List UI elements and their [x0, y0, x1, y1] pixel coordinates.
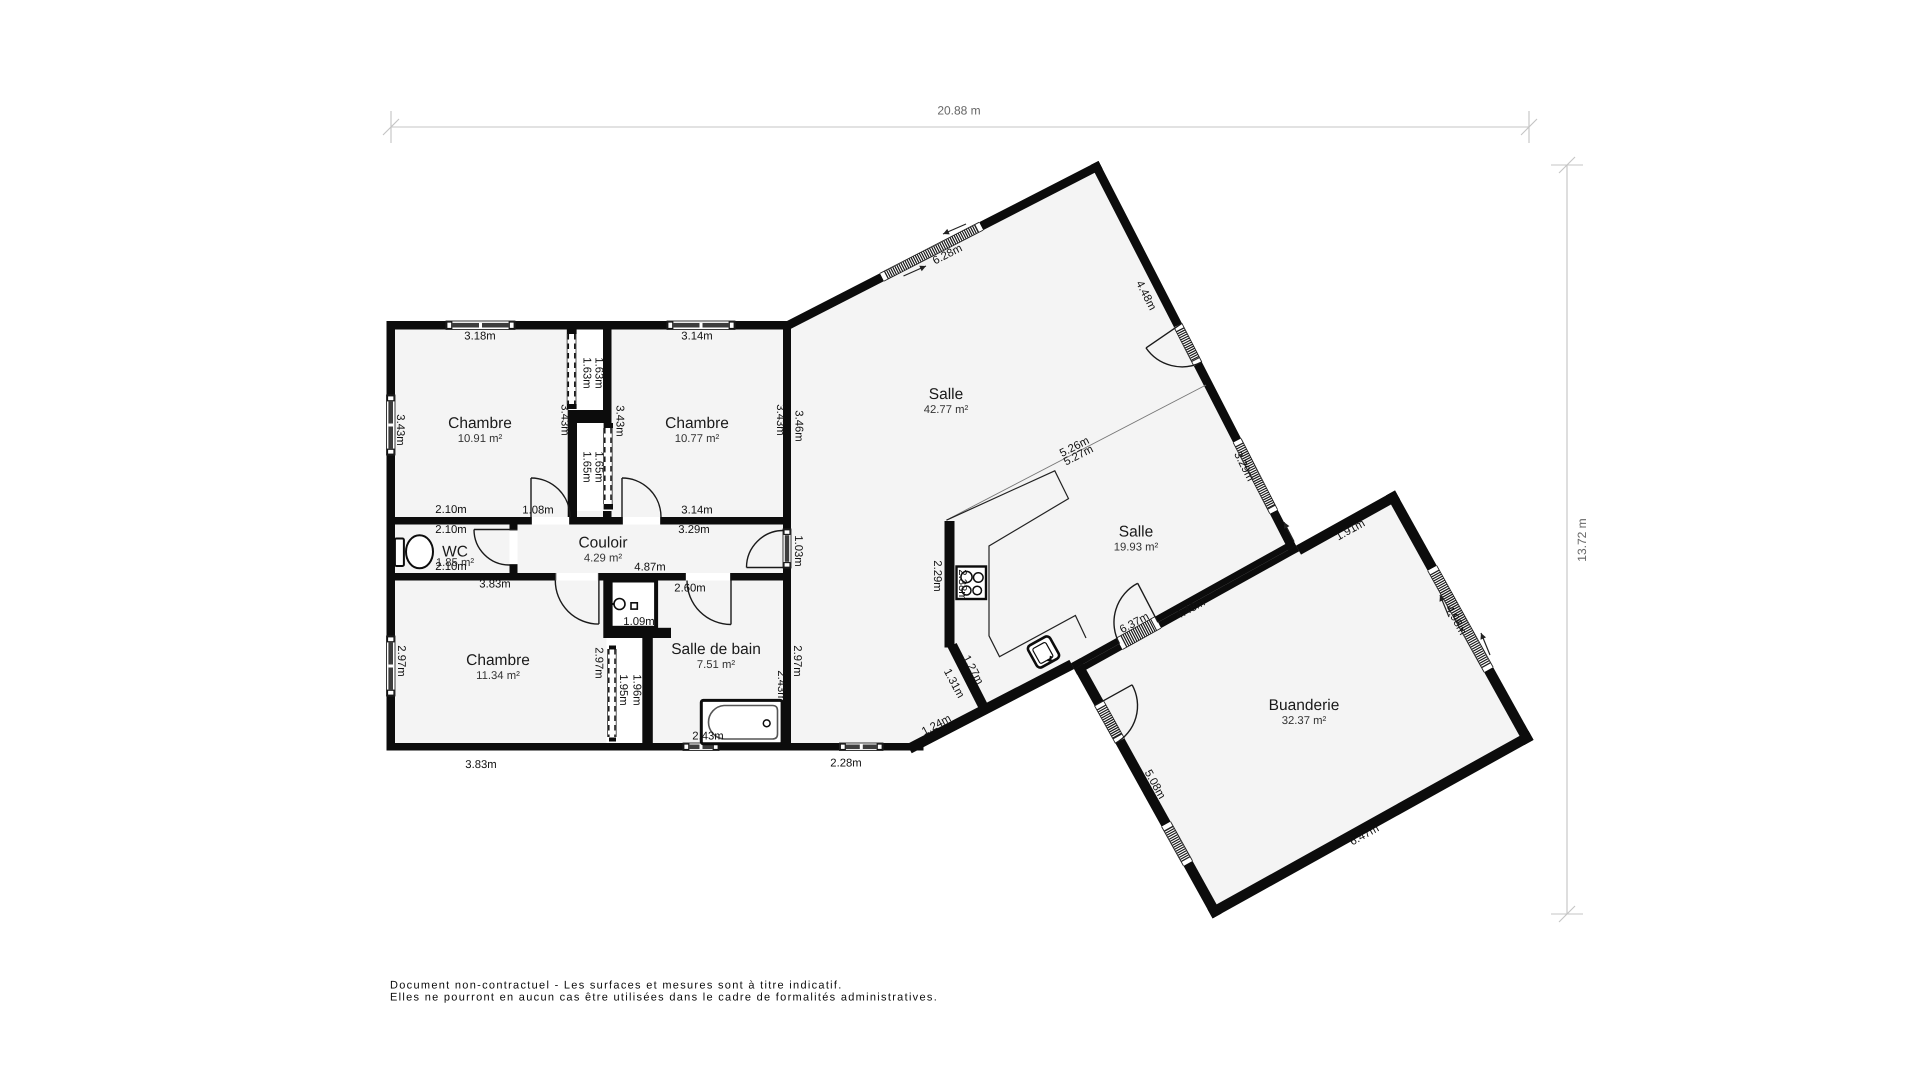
svg-text:Chambre: Chambre [665, 415, 729, 432]
svg-text:19.93 m²: 19.93 m² [1114, 542, 1159, 554]
svg-text:3.83m: 3.83m [465, 759, 496, 771]
svg-text:3.18m: 3.18m [464, 331, 495, 343]
svg-text:3.43m: 3.43m [559, 404, 571, 435]
svg-text:2.43m: 2.43m [775, 670, 787, 701]
svg-text:1.63m: 1.63m [593, 357, 605, 388]
svg-text:1.96m: 1.96m [631, 674, 643, 705]
svg-text:3.29m: 3.29m [678, 524, 709, 536]
svg-text:13.72 m: 13.72 m [1575, 518, 1589, 561]
svg-text:4.29 m²: 4.29 m² [584, 553, 623, 565]
svg-text:1.09m: 1.09m [623, 616, 654, 628]
svg-text:2.97m: 2.97m [791, 645, 803, 676]
svg-text:2.29m: 2.29m [931, 560, 943, 591]
svg-text:3.43m: 3.43m [394, 414, 406, 445]
svg-text:Salle: Salle [1119, 524, 1153, 541]
svg-text:32.37 m²: 32.37 m² [1282, 715, 1327, 727]
svg-text:2.97m: 2.97m [395, 645, 407, 676]
svg-text:1.65m: 1.65m [593, 451, 605, 482]
svg-text:2.28m: 2.28m [830, 758, 861, 770]
svg-text:2.43m: 2.43m [692, 731, 723, 743]
svg-text:3.14m: 3.14m [681, 505, 712, 517]
svg-text:11.34 m²: 11.34 m² [476, 670, 520, 682]
svg-text:1.08m: 1.08m [522, 505, 553, 517]
svg-text:1.95m: 1.95m [617, 674, 629, 705]
svg-text:1.03m: 1.03m [792, 535, 804, 566]
svg-text:2.10m: 2.10m [435, 524, 466, 536]
svg-text:1.63m: 1.63m [581, 357, 593, 388]
svg-text:3.14m: 3.14m [681, 331, 712, 343]
svg-text:Couloir: Couloir [578, 535, 627, 552]
svg-text:3.83m: 3.83m [479, 579, 510, 591]
svg-text:Document non-contractuel - Les: Document non-contractuel - Les surfaces … [390, 980, 843, 992]
svg-text:2.10m: 2.10m [435, 504, 466, 516]
svg-text:2.38m: 2.38m [956, 569, 968, 600]
svg-text:Buanderie: Buanderie [1269, 697, 1340, 714]
svg-text:Chambre: Chambre [466, 652, 530, 669]
svg-text:2.97m: 2.97m [593, 647, 605, 678]
svg-text:Elles ne pourront en aucun cas: Elles ne pourront en aucun cas être util… [390, 992, 938, 1004]
svg-text:Salle de bain: Salle de bain [671, 641, 761, 658]
svg-text:Salle: Salle [929, 386, 963, 403]
svg-text:7.51 m²: 7.51 m² [697, 659, 736, 671]
svg-text:10.77 m²: 10.77 m² [675, 433, 720, 445]
svg-text:10.91 m²: 10.91 m² [458, 433, 503, 445]
svg-text:3.43m: 3.43m [774, 404, 786, 435]
svg-text:3.46m: 3.46m [793, 410, 805, 441]
svg-text:4.87m: 4.87m [634, 562, 665, 574]
svg-text:3.43m: 3.43m [614, 405, 626, 436]
svg-text:1.65m: 1.65m [581, 451, 593, 482]
svg-text:Chambre: Chambre [448, 415, 512, 432]
svg-text:2.60m: 2.60m [674, 583, 705, 595]
svg-text:42.77 m²: 42.77 m² [924, 404, 969, 416]
svg-text:2.10m: 2.10m [435, 561, 466, 573]
svg-text:20.88 m: 20.88 m [937, 104, 980, 118]
